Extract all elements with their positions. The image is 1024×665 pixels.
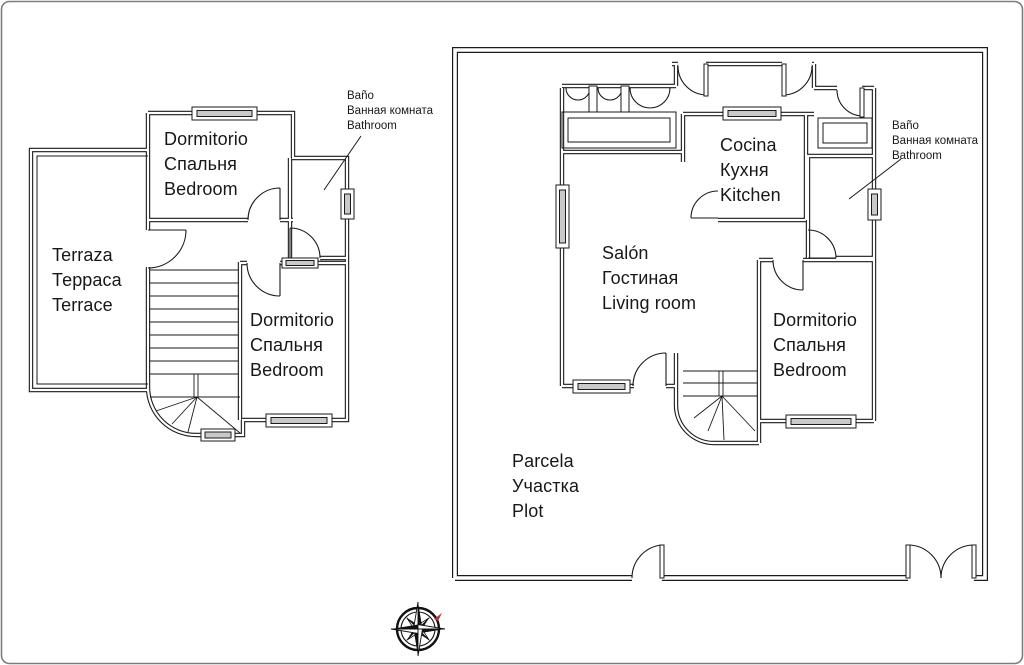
ground-bathroom-annotation: Baño Ванная комната Bathroom [892,119,978,164]
annotation-leader-line [324,136,361,190]
label-line: Bathroom [892,149,978,164]
bedroom-bottom-label: Dormitorio Спальня Bedroom [250,308,334,383]
window [266,414,332,427]
window [556,185,569,248]
label-line: Terraza [52,243,122,268]
floorplan-drawing [0,0,1024,665]
label-line: Спальня [773,333,857,358]
window [192,107,257,120]
label-line: Parcela [512,449,579,474]
label-line: Plot [512,499,579,524]
window [786,415,856,428]
entry-steps [818,118,872,148]
floorplan-canvas: Dormitorio Спальня Bedroom Terraza Терра… [0,0,1024,665]
upper-floor-staircase [150,270,240,433]
label-line: Baño [347,89,433,104]
label-line: Кухня [720,158,781,183]
label-line: Terrace [52,293,122,318]
upper-floor-door-swings [148,188,320,296]
label-line: Терраса [52,268,122,293]
window [341,189,354,219]
label-line: Гостиная [602,266,696,291]
label-line: Участка [512,474,579,499]
label-line: Спальня [164,152,248,177]
compass-cardinal-points [391,602,445,656]
label-line: Спальня [250,333,334,358]
annotation-leader-lines [324,136,901,199]
label-line: Bedroom [164,177,248,202]
label-line: Ванная комната [892,134,978,149]
window [868,189,881,220]
label-line: Bathroom [347,119,433,134]
page-border [2,2,1023,664]
ground-bedroom-label: Dormitorio Спальня Bedroom [773,308,857,383]
window [282,258,318,268]
label-line: Bedroom [773,358,857,383]
label-line: Living room [602,291,696,316]
plot-label: Parcela Участка Plot [512,449,579,524]
compass-rose-icon [391,602,445,656]
kitchen-label: Cocina Кухня Kitchen [720,133,781,208]
terrace-label: Terraza Терраса Terrace [52,243,122,318]
label-line: Ванная комната [347,104,433,119]
window [723,107,781,120]
window [201,429,235,441]
label-line: Baño [892,119,978,134]
window [573,380,630,393]
label-line: Salón [602,241,696,266]
entry-porch [562,86,676,148]
ground-floor-staircase [683,371,757,440]
label-line: Kitchen [720,183,781,208]
label-line: Dormitorio [250,308,334,333]
label-line: Dormitorio [164,127,248,152]
bedroom-top-label: Dormitorio Спальня Bedroom [164,127,248,202]
upper-bathroom-annotation: Baño Ванная комната Bathroom [347,89,433,134]
label-line: Dormitorio [773,308,857,333]
label-line: Bedroom [250,358,334,383]
label-line: Cocina [720,133,781,158]
living-room-label: Salón Гостиная Living room [602,241,696,316]
